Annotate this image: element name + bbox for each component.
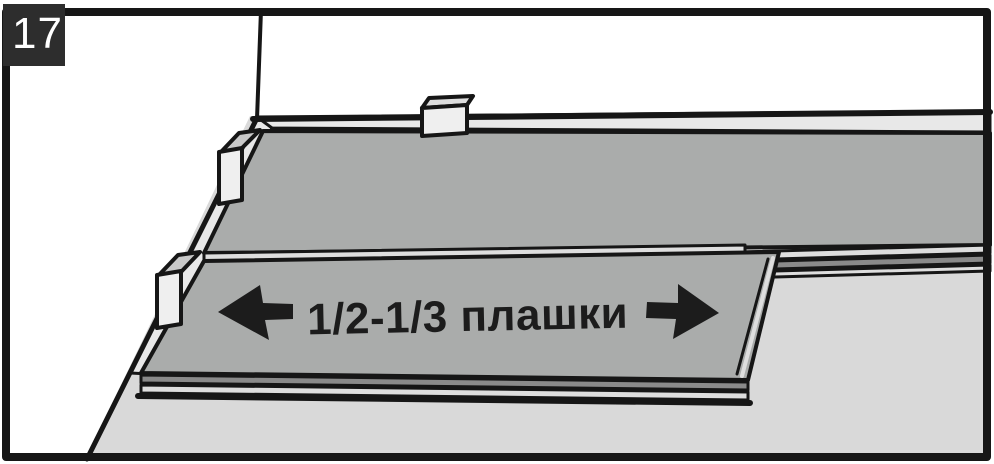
spacer-front-face (422, 105, 467, 136)
flooring-illustration: 1/2-1/3 плашки (0, 0, 994, 464)
spacer-front-face (157, 271, 181, 328)
plank-row-first (204, 131, 990, 253)
spacer-wedge-back-wall (422, 96, 473, 136)
figure-label: 1/2-1/3 плашки (307, 289, 629, 345)
instruction-figure: 17 (0, 0, 994, 464)
spacer-front-face (219, 148, 242, 204)
step-number-badge: 17 (3, 4, 65, 66)
